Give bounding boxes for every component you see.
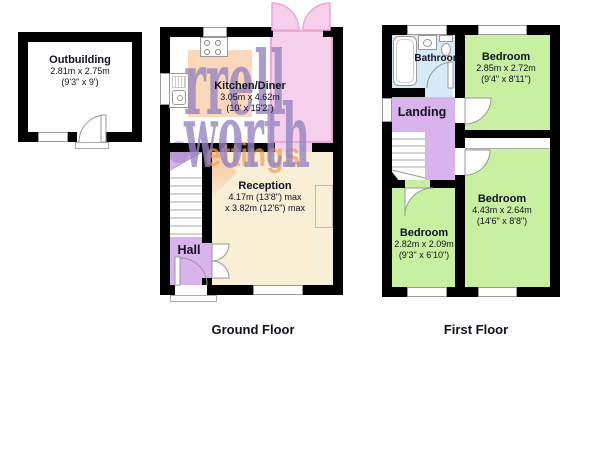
- ground-floor-caption: Ground Floor: [183, 322, 323, 337]
- toilet-bowl: [441, 43, 451, 56]
- window: [407, 25, 447, 35]
- landing-floor: [392, 97, 455, 132]
- wall: [202, 278, 212, 285]
- front-door-step: [170, 295, 217, 302]
- wall: [132, 32, 142, 142]
- sink-drain: [177, 95, 183, 101]
- bathroom-door-opening: [425, 88, 453, 97]
- ground-floor-plan: ettings rrell worth Kitchen/Diner 3.05m …: [160, 0, 350, 305]
- wall: [18, 32, 28, 142]
- bathtub-inner: [396, 39, 414, 83]
- door-opening: [77, 132, 106, 142]
- first-floor-caption: First Floor: [406, 322, 546, 337]
- wall: [202, 143, 212, 243]
- bedroom-rear-large-strip: [465, 138, 550, 148]
- window: [407, 287, 447, 297]
- wall: [160, 27, 170, 295]
- door-step: [75, 142, 109, 149]
- wall: [170, 143, 275, 152]
- floorplan-page: Outbuilding 2.81m x 2.75m (9'3" x 9'): [0, 0, 600, 451]
- wall: [430, 180, 465, 188]
- bedroom-door-opening: [405, 180, 430, 188]
- first-floor-plan: Bathroom Landing Bedroom 2.85m x 2.72m (…: [380, 20, 565, 300]
- wall: [392, 180, 405, 188]
- window: [478, 25, 527, 35]
- stair-tread-lines: [392, 139, 425, 167]
- outbuilding-floor: [28, 42, 132, 132]
- wall: [333, 27, 343, 295]
- hob-burner: [204, 40, 210, 46]
- wall: [455, 35, 465, 98]
- chimney-recess: [315, 185, 333, 228]
- wall: [312, 143, 333, 152]
- bedroom-rear-large-floor: [465, 148, 550, 287]
- french-door-opening: [275, 143, 312, 152]
- landing-floor-column: [425, 132, 455, 180]
- hob-burner: [215, 40, 221, 46]
- wall: [18, 32, 142, 42]
- wall: [455, 138, 465, 148]
- wall: [382, 25, 392, 297]
- hall-door-opening: [202, 243, 212, 278]
- patio-door-swing-left: [272, 3, 299, 30]
- wall: [550, 25, 560, 297]
- window: [382, 98, 392, 122]
- bedroom-front-floor: [465, 35, 550, 130]
- hob-burner: [204, 49, 210, 55]
- hob-burner: [215, 49, 221, 55]
- toilet-cistern: [439, 35, 453, 42]
- window: [203, 27, 227, 37]
- window: [478, 287, 517, 297]
- wall: [455, 175, 465, 287]
- front-door-opening: [175, 285, 207, 295]
- bedroom-rear-small-floor: [392, 188, 455, 287]
- wall: [392, 88, 425, 97]
- drainer: [172, 76, 186, 88]
- outbuilding-plan: Outbuilding 2.81m x 2.75m (9'3" x 9'): [18, 32, 142, 154]
- stairs-treads: [392, 132, 425, 178]
- window: [38, 132, 68, 142]
- watermark-square: [188, 50, 252, 117]
- conservatory-area: [270, 30, 333, 143]
- basin-bowl: [423, 39, 432, 47]
- stair-winder-line: [392, 170, 425, 178]
- patio-door-swing-right: [303, 3, 330, 30]
- wall: [455, 130, 550, 138]
- window: [253, 285, 303, 295]
